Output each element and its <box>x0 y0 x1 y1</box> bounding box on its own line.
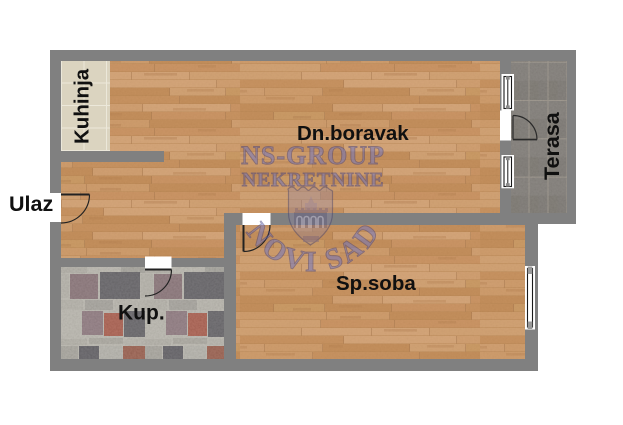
svg-text:Kup.: Kup. <box>118 302 165 325</box>
svg-text:Ulaz: Ulaz <box>9 192 53 216</box>
svg-text:NS-GROUP: NS-GROUP <box>241 141 385 170</box>
svg-text:Kuhinja: Kuhinja <box>71 68 94 144</box>
svg-text:Terasa: Terasa <box>540 111 564 180</box>
svg-text:Sp.soba: Sp.soba <box>336 272 416 295</box>
